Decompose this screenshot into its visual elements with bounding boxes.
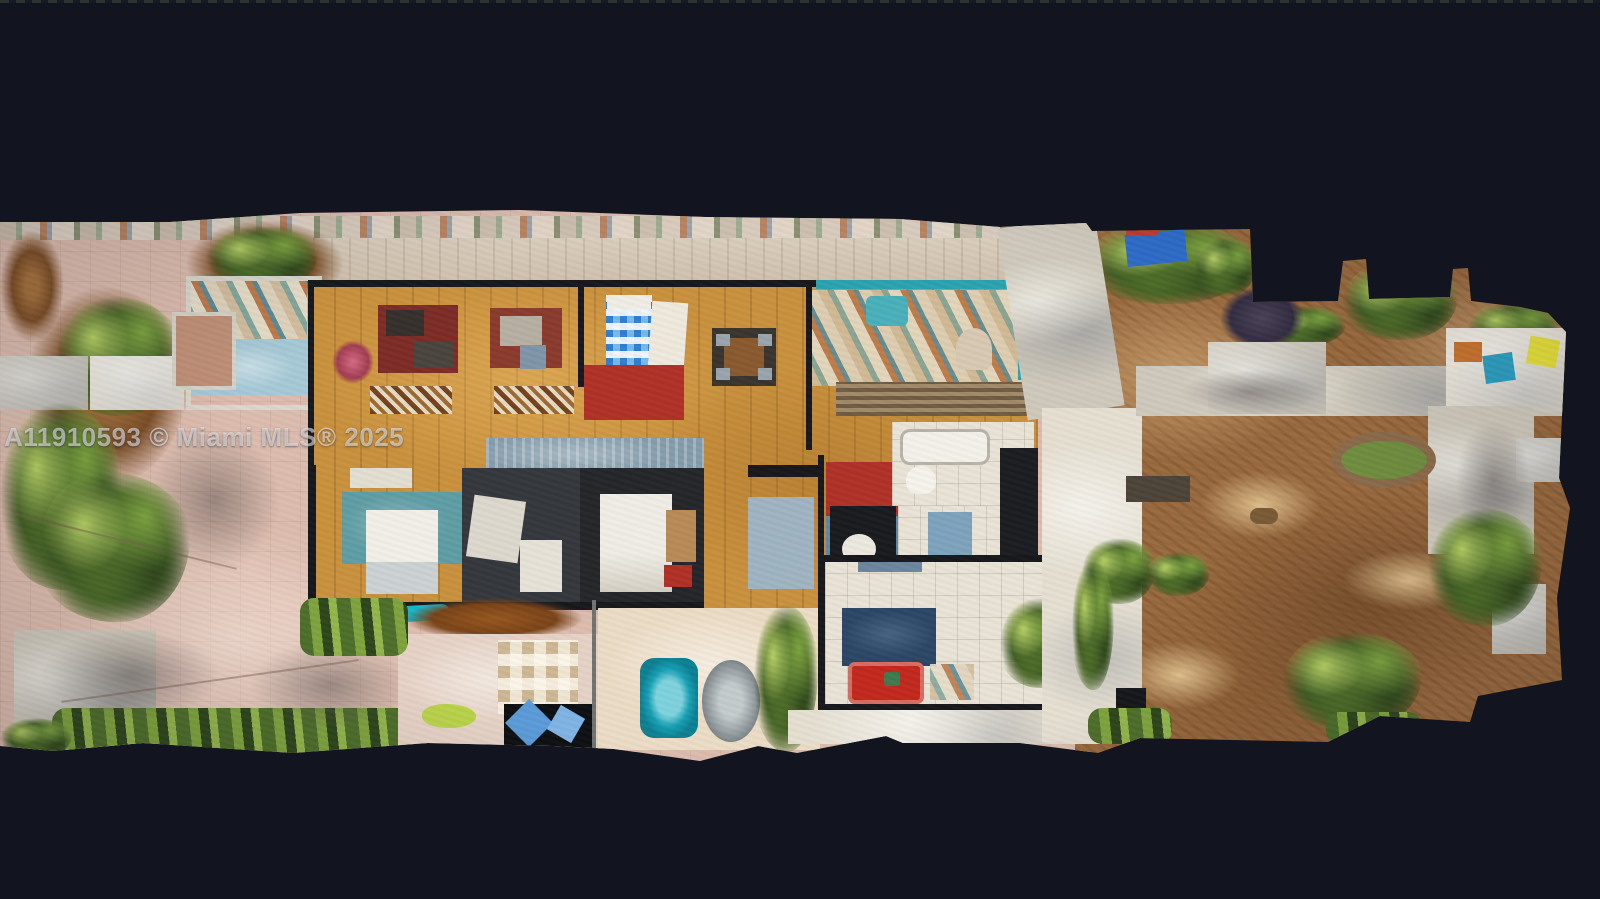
sidewalk-slab — [0, 356, 88, 410]
tree-shadow — [40, 630, 220, 720]
front-step-frame — [172, 312, 236, 390]
area-rug-patterned — [494, 386, 574, 414]
sofa — [414, 342, 454, 368]
sidewalk-slab — [90, 356, 184, 410]
planter-box — [1126, 476, 1190, 502]
lime-planting — [422, 704, 476, 728]
nightstand — [666, 510, 696, 562]
closet-fixture — [466, 495, 526, 564]
screenshot-root: { "watermark": { "text": "A11910593 © Mi… — [0, 0, 1600, 899]
patio-table-round — [702, 660, 760, 742]
kitchen — [812, 290, 1032, 386]
desk — [500, 316, 542, 346]
bedroom3-bed-white — [600, 494, 672, 592]
bedroom-wall — [310, 465, 316, 611]
backyard-shrub-dark — [1486, 696, 1564, 746]
side-yard-plants — [1072, 560, 1114, 690]
area-rug-patterned — [370, 386, 452, 414]
bathtub — [900, 429, 990, 465]
wall-art — [858, 562, 922, 572]
patio-checker-pavers — [498, 640, 578, 714]
backyard-shrub — [1146, 552, 1210, 596]
backyard-shrub-cluster — [1428, 508, 1542, 626]
bed-blanket — [366, 562, 438, 594]
garden-ring — [1332, 432, 1436, 488]
side-table-items — [930, 664, 974, 700]
kitchen-arch — [956, 328, 992, 370]
bedside-table — [648, 301, 689, 369]
yellow-chair — [1526, 336, 1560, 369]
screen-top-noise — [0, 0, 1600, 3]
backyard-foliage — [1342, 262, 1458, 340]
bed-pillow — [607, 295, 651, 309]
couch-pillow — [884, 672, 900, 686]
screen-pole — [592, 600, 596, 750]
dining-chair — [716, 334, 730, 346]
orange-item — [1454, 342, 1482, 362]
armchair — [520, 345, 546, 369]
log-bench — [1250, 508, 1278, 524]
tree-shadow — [1180, 370, 1320, 414]
shower-stall — [748, 497, 814, 589]
aerial-scan-photo — [0, 210, 1572, 762]
toilet — [906, 466, 936, 494]
hall-wall — [748, 465, 822, 477]
scan-top-debris-fringe — [0, 216, 1088, 240]
red-ottoman — [664, 565, 692, 587]
kitchen-island — [866, 296, 908, 326]
kitchen-counter-deck — [836, 382, 1034, 416]
hot-tub — [640, 658, 698, 738]
dirt-light-patch — [1180, 460, 1340, 550]
backyard-hedge-fringe — [1088, 708, 1172, 744]
family-room-wall-left — [818, 555, 825, 713]
mls-watermark-text: A11910593 © Miami MLS® 2025 — [4, 422, 404, 453]
dining-chair — [758, 368, 772, 380]
front-wall-band — [295, 238, 1017, 284]
backyard-hedge-fringe — [1326, 712, 1422, 744]
kitchen-teal-cabinets — [816, 280, 1030, 289]
family-room-wall-top — [820, 555, 1076, 562]
dining-chair — [716, 368, 730, 380]
shrub — [0, 718, 72, 758]
hallway-floor — [486, 438, 704, 470]
teal-chair — [1482, 352, 1516, 384]
bedroom-rug-red — [584, 365, 684, 420]
dresser — [350, 468, 412, 488]
closet-fixture — [520, 540, 562, 592]
sofa — [386, 310, 424, 336]
rear-hedge — [300, 598, 408, 656]
family-room-rug-navy — [842, 608, 936, 666]
red-tarp-item — [1126, 222, 1158, 236]
dining-chair — [758, 334, 772, 346]
